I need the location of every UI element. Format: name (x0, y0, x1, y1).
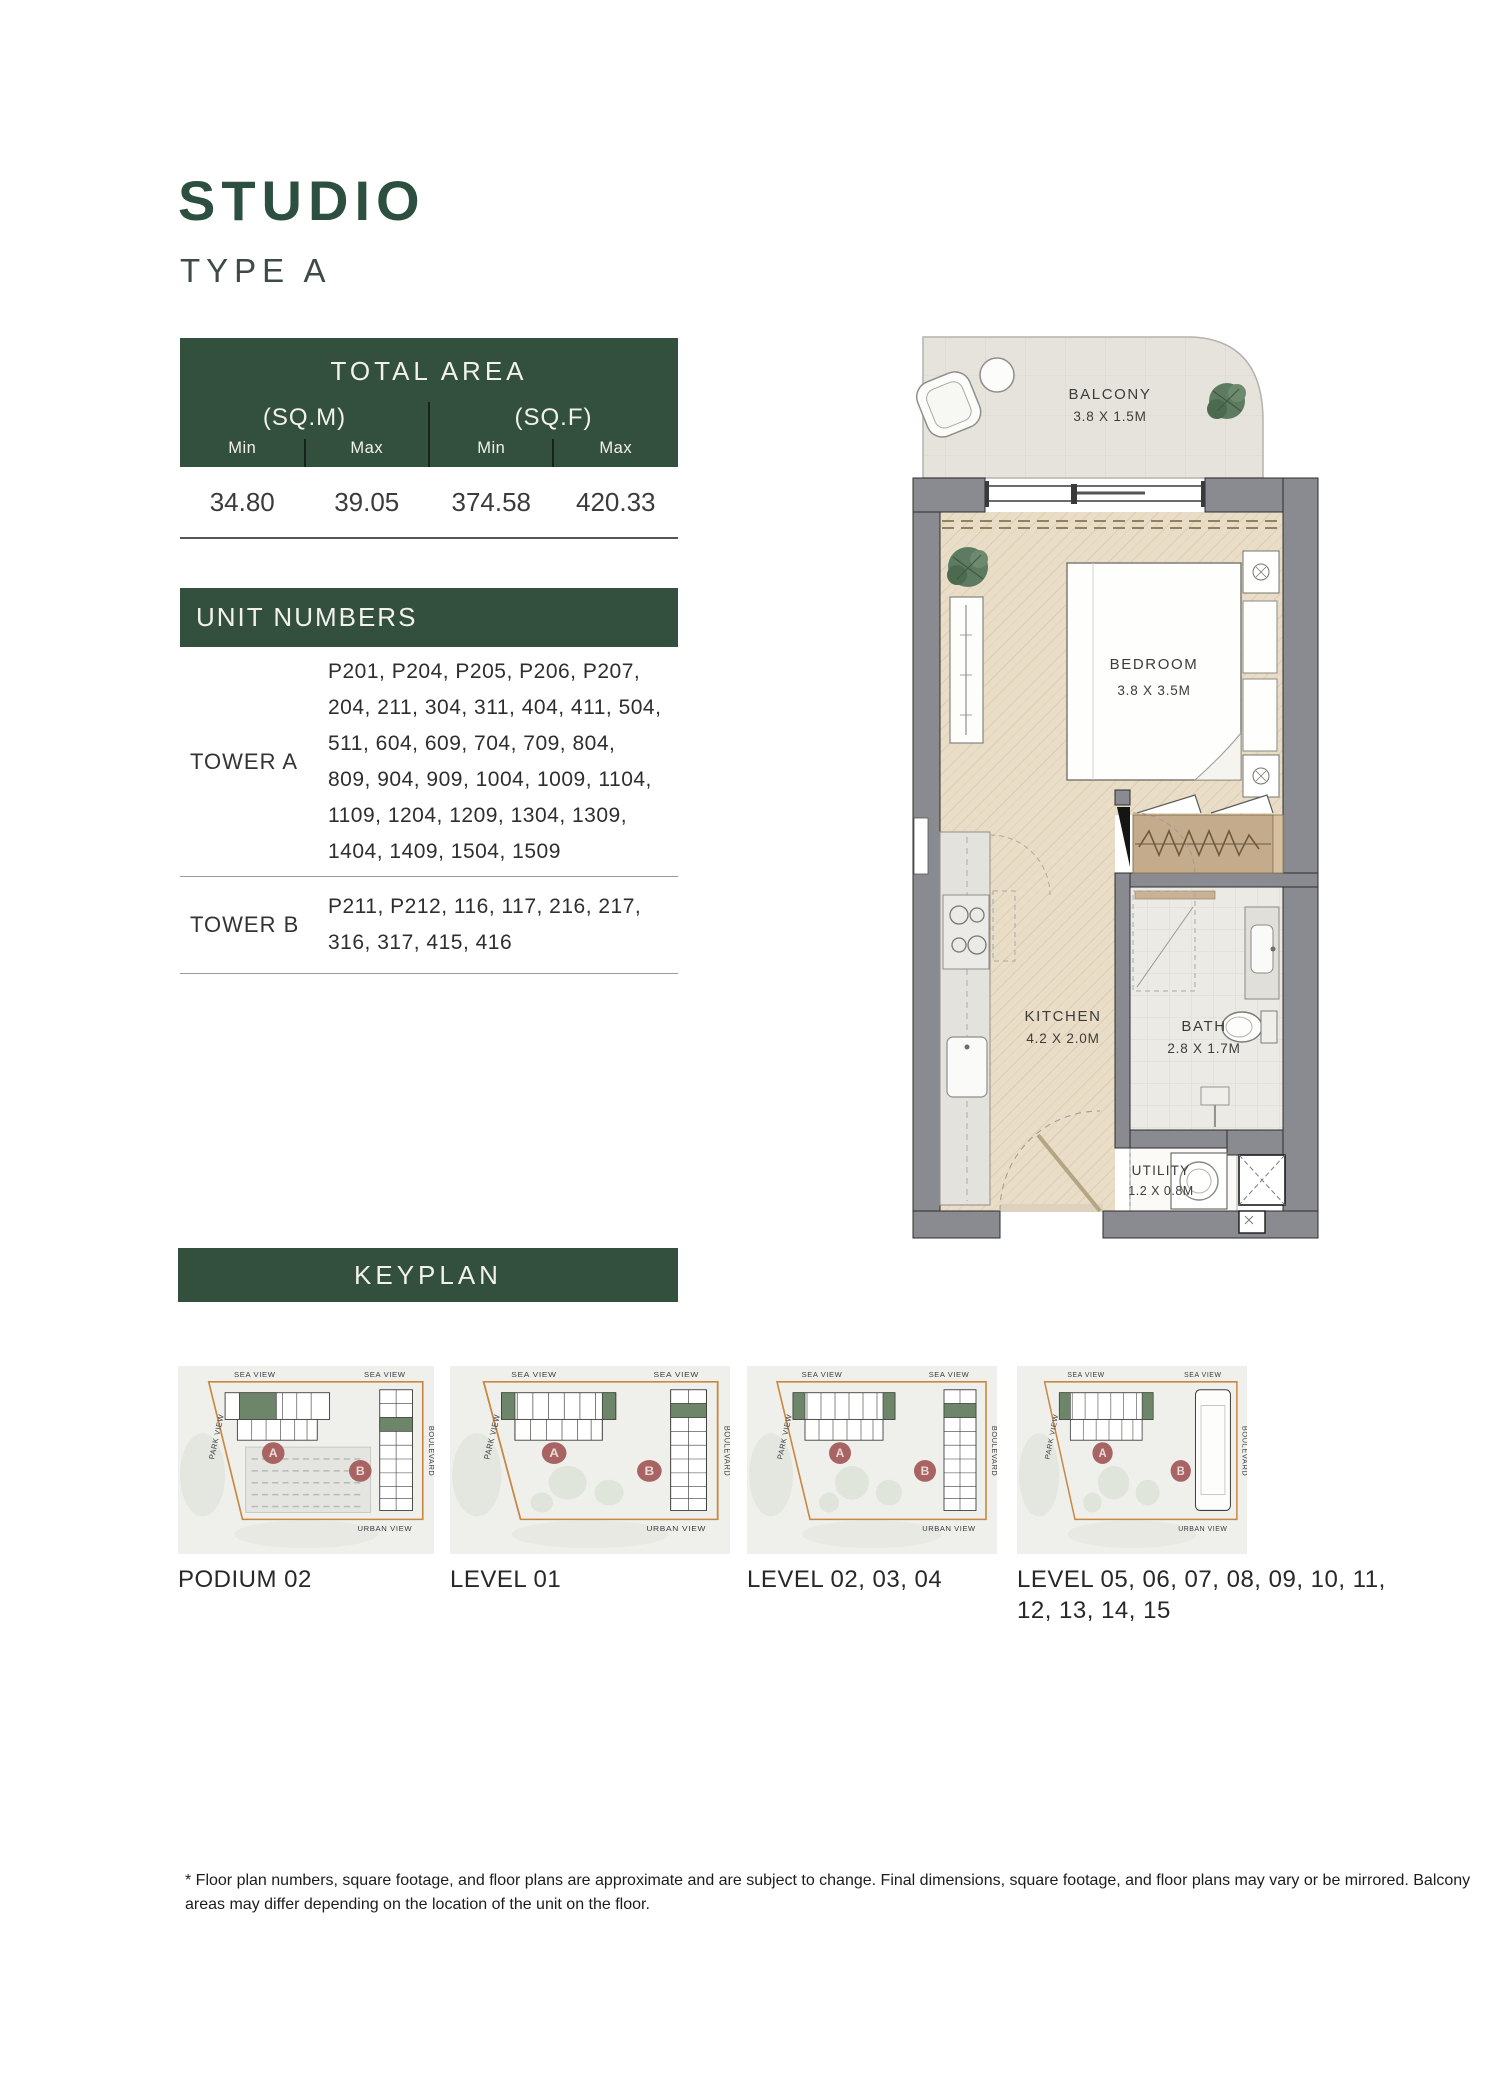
brochure-page: STUDIO TYPE A TOTAL AREA (SQ.M) (SQ.F) M… (0, 0, 1500, 2100)
total-area-table: TOTAL AREA (SQ.M) (SQ.F) Min Max Min Max… (180, 338, 678, 539)
tower-a-badge: A (542, 1442, 567, 1464)
keyplan-card-label: LEVEL 05, 06, 07, 08, 09, 10, 11, (1017, 1564, 1247, 1595)
column-divider (304, 439, 306, 467)
disclaimer-line2: areas may differ depending on the locati… (185, 1893, 1470, 1917)
tower-b-badge: B (914, 1460, 936, 1482)
unit-numbers-table: UNIT NUMBERS TOWER A P201, P204, P205, P… (180, 588, 678, 974)
unit-group-sqm: (SQ.M) (180, 404, 429, 439)
column-divider (552, 439, 554, 467)
tower-b-badge: B (637, 1460, 662, 1482)
sea-view-label: SEA VIEW (234, 1370, 276, 1379)
svg-text:A: A (269, 1446, 278, 1460)
sea-view-label: SEA VIEW (929, 1370, 970, 1379)
urban-view-label: URBAN VIEW (357, 1524, 412, 1533)
sea-view-label: SEA VIEW (1067, 1371, 1104, 1379)
value-min-sqf: 374.58 (429, 487, 554, 518)
keyplan-map: A B SEA VIEW SEA VIEW PARK VIEW BOULEVAR… (1017, 1366, 1247, 1554)
value-max-sqf: 420.33 (554, 487, 679, 518)
total-area-values: 34.80 39.05 374.58 420.33 (180, 467, 678, 539)
value-max-sqm: 39.05 (305, 487, 430, 518)
sea-view-label: SEA VIEW (802, 1370, 843, 1379)
tower-b-badge: B (349, 1460, 372, 1482)
kitchen-dims: 4.2 X 2.0M (1026, 1031, 1099, 1046)
boulevard-label: BOULEVARD (427, 1426, 434, 1477)
balcony (912, 337, 1263, 478)
entry-threshold (1000, 1204, 1103, 1212)
kitchen-label: KITCHEN (1024, 1008, 1101, 1025)
balcony-label: BALCONY (1069, 386, 1152, 403)
tower-a-label: TOWER A (180, 654, 328, 870)
col-header-max-sqm: Max (305, 439, 430, 467)
floor-plan: BALCONY 3.8 X 1.5M BEDROOM 3.8 X 3.5M KI… (905, 335, 1325, 1245)
total-area-title: TOTAL AREA (180, 338, 678, 404)
bedroom-dims: 3.8 X 3.5M (1117, 683, 1190, 698)
tower-a-units: P201, P204, P205, P206, P207, 204, 211, … (328, 654, 678, 870)
urban-view-label: URBAN VIEW (1178, 1525, 1227, 1533)
tower-a-badge: A (1092, 1442, 1112, 1464)
svg-text:B: B (1177, 1466, 1185, 1478)
bath-dims: 2.8 X 1.7M (1167, 1041, 1240, 1056)
urban-view-label: URBAN VIEW (922, 1524, 976, 1533)
column-divider (428, 402, 430, 467)
keyplan-card-level-01: A B SEA VIEW SEA VIEW PARK VIEW BOULEVAR… (450, 1366, 730, 1595)
urban-view-label: URBAN VIEW (646, 1525, 706, 1533)
sea-view-label: SEA VIEW (364, 1370, 406, 1379)
tower-b-label: TOWER B (180, 889, 328, 961)
keyplan-card-label: PODIUM 02 (178, 1564, 434, 1595)
disclaimer-line1: * Floor plan numbers, square footage, an… (185, 1869, 1470, 1893)
keyplan-card-label: LEVEL 01 (450, 1564, 730, 1595)
boulevard-label: BOULEVARD (1240, 1426, 1247, 1477)
boulevard-label: BOULEVARD (990, 1426, 997, 1477)
page-title: STUDIO (178, 170, 426, 232)
wall-panel (914, 818, 928, 874)
washing-machine (1171, 1153, 1227, 1209)
balcony-table-icon (980, 358, 1014, 392)
col-header-min-sqf: Min (429, 439, 554, 467)
col-header-min-sqm: Min (180, 439, 305, 467)
bedroom-closet (950, 597, 983, 743)
bedroom-label: BEDROOM (1110, 656, 1199, 673)
tower-b-units: P211, P212, 116, 117, 216, 217, 316, 317… (328, 889, 678, 961)
sea-view-label: SEA VIEW (1184, 1371, 1221, 1379)
svg-text:B: B (645, 1465, 655, 1478)
table-row: TOWER B P211, P212, 116, 117, 216, 217, … (180, 877, 678, 974)
utility-dims: 1.2 X 0.8M (1128, 1184, 1193, 1198)
sea-view-label: SEA VIEW (654, 1370, 699, 1378)
keyplan-card-label: LEVEL 02, 03, 04 (747, 1564, 997, 1595)
tower-a-badge: A (829, 1442, 851, 1464)
boulevard-label: BOULEVARD (722, 1426, 730, 1476)
keyplan-card-podium-02: A B SEA VIEW SEA VIEW PARK VIEW BOULEVAR… (178, 1366, 434, 1595)
table-row: TOWER A P201, P204, P205, P206, P207, 20… (180, 647, 678, 877)
sea-view-label: SEA VIEW (511, 1370, 556, 1378)
tower-a-badge: A (262, 1442, 285, 1464)
disclaimer: * Floor plan numbers, square footage, an… (185, 1869, 1470, 1917)
svg-text:A: A (549, 1447, 559, 1460)
balcony-dims: 3.8 X 1.5M (1073, 409, 1146, 424)
unit-numbers-title: UNIT NUMBERS (180, 588, 678, 647)
page-subtitle: TYPE A (180, 253, 332, 289)
svg-text:B: B (356, 1464, 365, 1478)
value-min-sqm: 34.80 (180, 487, 305, 518)
keyplan-map: A B SEA VIEW SEA VIEW PARK VIEW BOULEVAR… (450, 1366, 730, 1554)
keyplan-map: A B SEA VIEW SEA VIEW PARK VIEW BOULEVAR… (178, 1366, 434, 1554)
svg-text:B: B (921, 1464, 930, 1478)
tower-b-badge: B (1171, 1460, 1191, 1482)
keyplan-card-label-line2: 12, 13, 14, 15 (1017, 1595, 1247, 1626)
svg-text:A: A (1099, 1448, 1107, 1460)
keyplan-card-level-02-03-04: A B SEA VIEW SEA VIEW PARK VIEW BOULEVAR… (747, 1366, 997, 1595)
bath-label: BATH (1181, 1018, 1226, 1035)
total-area-header-block: TOTAL AREA (SQ.M) (SQ.F) Min Max Min Max (180, 338, 678, 467)
col-header-max-sqf: Max (554, 439, 679, 467)
keyplan-title: KEYPLAN (178, 1248, 678, 1302)
door-pivot (1117, 807, 1130, 867)
utility-label: UTILITY (1132, 1163, 1191, 1178)
svg-text:A: A (836, 1446, 845, 1460)
keyplan-card-level-05-15: A B SEA VIEW SEA VIEW PARK VIEW BOULEVAR… (1017, 1366, 1247, 1626)
keyplan-map: A B SEA VIEW SEA VIEW PARK VIEW BOULEVAR… (747, 1366, 997, 1554)
window (985, 481, 1205, 507)
unit-group-sqf: (SQ.F) (429, 404, 678, 439)
